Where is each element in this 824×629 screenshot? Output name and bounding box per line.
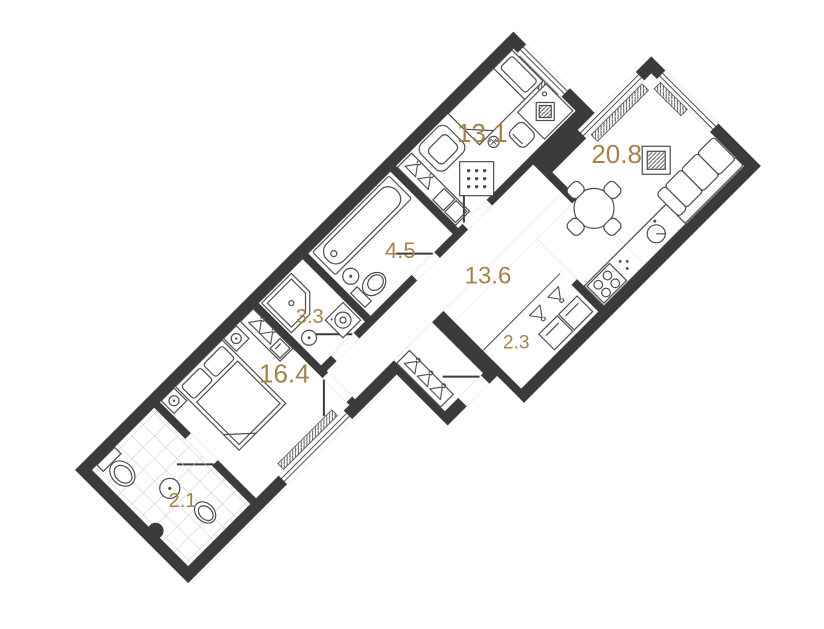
tv-unit-icon: [642, 146, 670, 174]
room-label-16-4: 16.4: [259, 358, 310, 388]
room-label-13-1: 13.1: [457, 118, 508, 148]
plan-rotated-group: 13.1 20.8 4.5 13.6 3.3 2.3 16.4 2.1: [75, 0, 761, 629]
room-label-13-6: 13.6: [465, 262, 512, 289]
laptop-icon: [536, 102, 554, 120]
floor-plan-page: 13.1 20.8 4.5 13.6 3.3 2.3 16.4 2.1: [0, 0, 824, 629]
room-label-3-3: 3.3: [296, 306, 324, 328]
room-label-2-1: 2.1: [169, 490, 197, 512]
room-label-2-3: 2.3: [503, 332, 529, 353]
room-label-20-8: 20.8: [591, 139, 642, 169]
room-label-4-5: 4.5: [385, 238, 416, 263]
rug-icon: [460, 162, 494, 196]
floor-plan: 13.1 20.8 4.5 13.6 3.3 2.3 16.4 2.1: [0, 0, 824, 629]
